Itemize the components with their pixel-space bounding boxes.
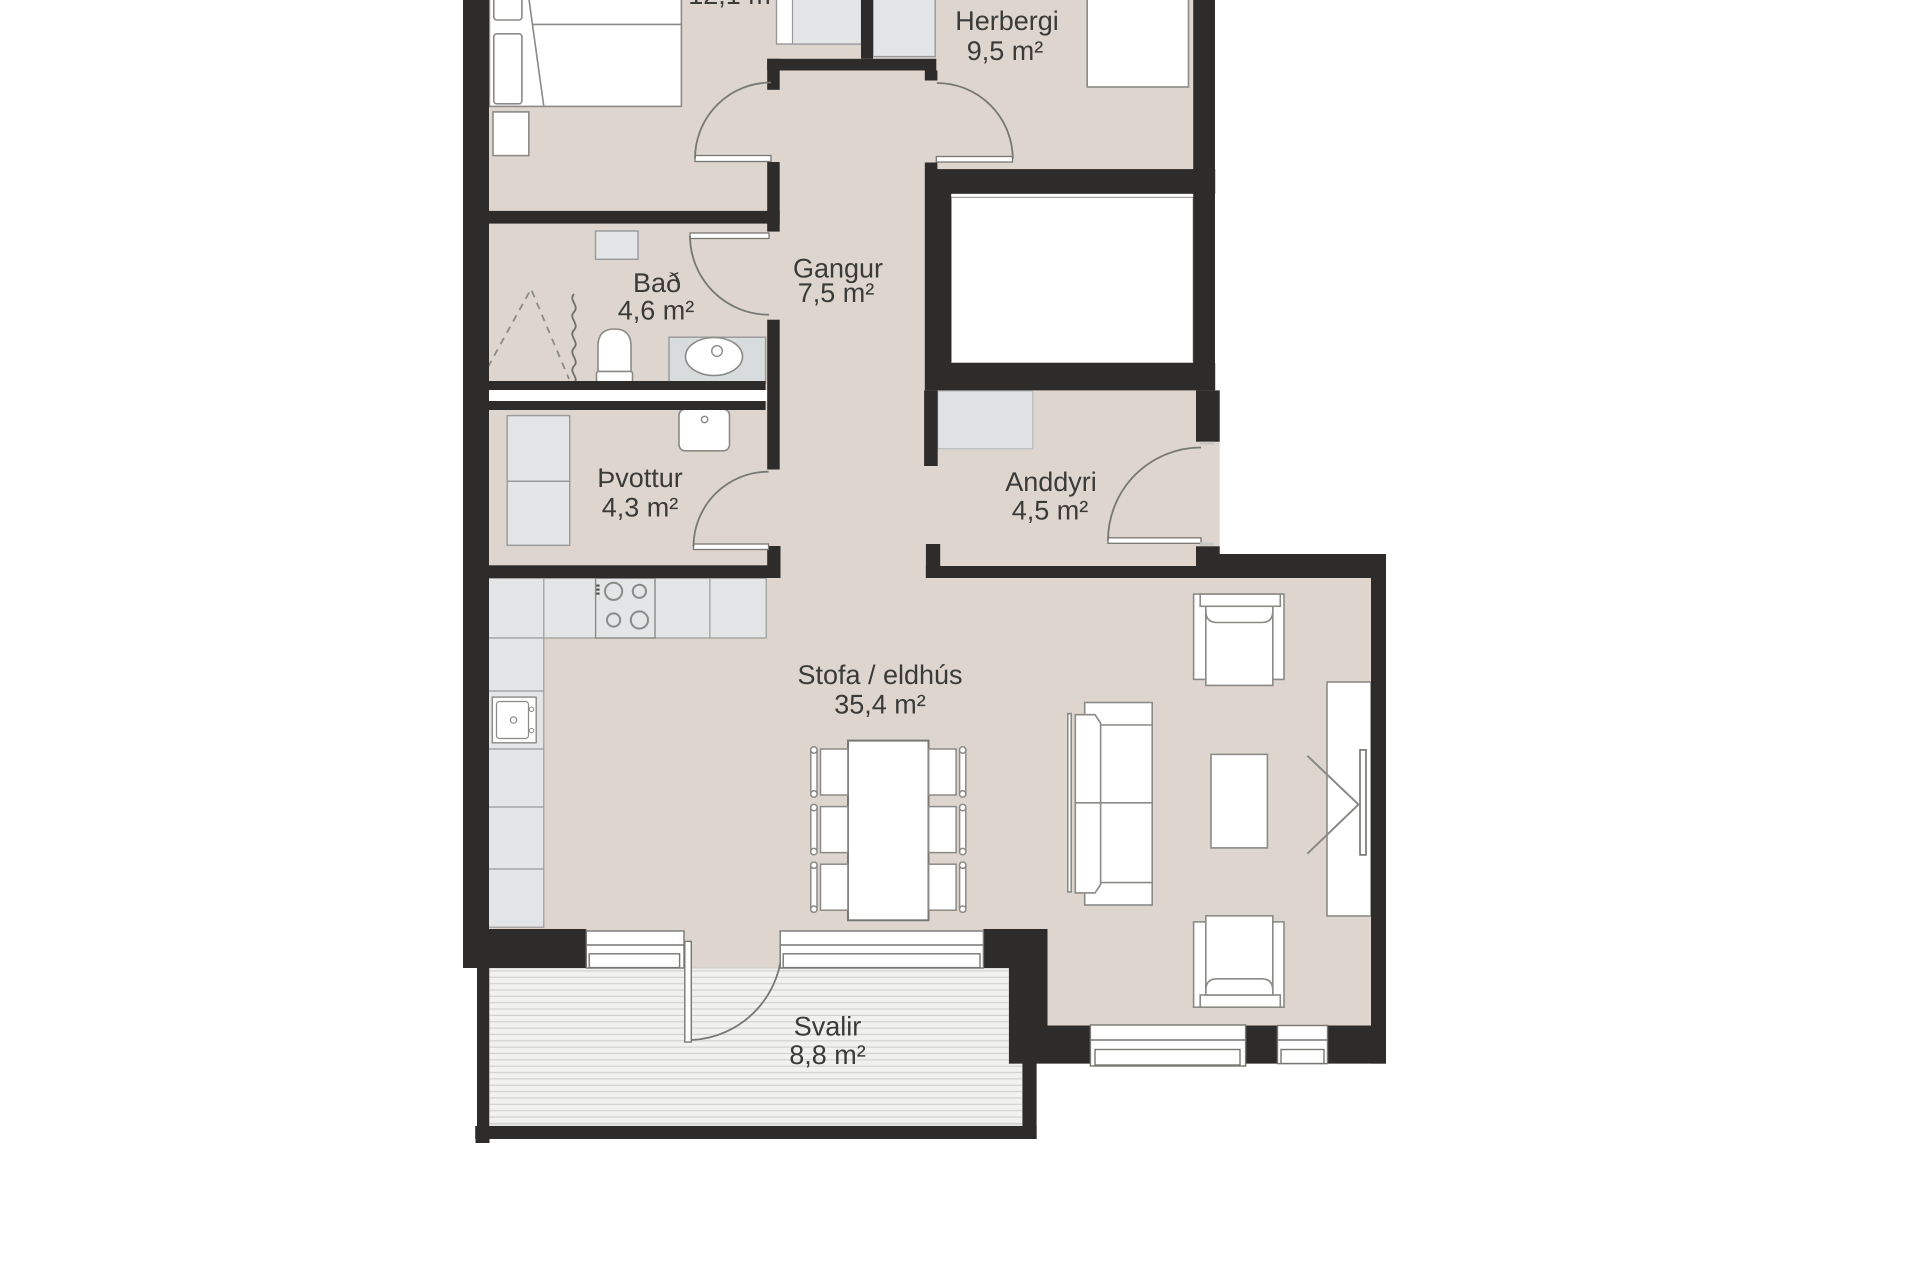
svg-text:Anddyri: Anddyri bbox=[1005, 467, 1097, 497]
svg-text:Svalir: Svalir bbox=[794, 1012, 862, 1042]
svg-text:4,3 m²: 4,3 m² bbox=[602, 492, 679, 522]
svg-text:4,6 m²: 4,6 m² bbox=[618, 296, 695, 326]
svg-text:8,8 m²: 8,8 m² bbox=[789, 1040, 866, 1070]
svg-text:4,5 m²: 4,5 m² bbox=[1012, 496, 1089, 526]
svg-text:Stofa / eldhús: Stofa / eldhús bbox=[797, 660, 962, 690]
svg-text:9,5 m²: 9,5 m² bbox=[967, 36, 1044, 66]
svg-text:Þvottur: Þvottur bbox=[597, 463, 683, 493]
svg-text:Bað: Bað bbox=[633, 268, 681, 298]
svg-text:7,5 m²: 7,5 m² bbox=[798, 278, 875, 308]
svg-text:35,4 m²: 35,4 m² bbox=[834, 690, 926, 720]
svg-text:Herbergi: Herbergi bbox=[955, 6, 1059, 36]
svg-text:12,1 m²: 12,1 m² bbox=[688, 0, 780, 10]
